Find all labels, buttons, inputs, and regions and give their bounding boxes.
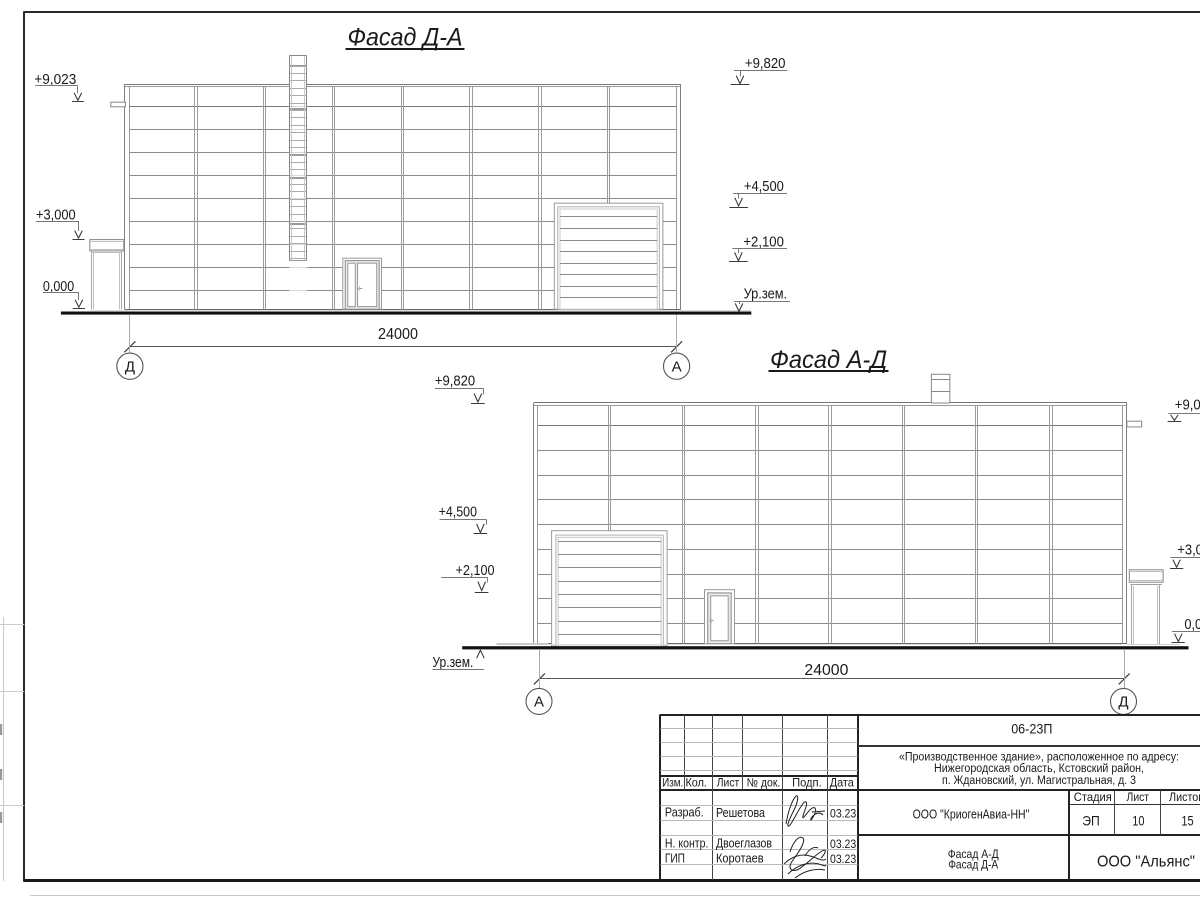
svg-text:Изм.: Изм. [662,776,683,790]
svg-text:+2,100: +2,100 [743,234,784,250]
svg-text:Разраб.: Разраб. [665,806,704,820]
svg-text:+9,020: +9,020 [1175,398,1200,414]
svg-text:Ур.зем.: Ур.зем. [744,287,788,303]
svg-text:Листов: Листов [1169,790,1200,804]
svg-text:+9,820: +9,820 [435,374,475,390]
svg-text:ООО "Альянс": ООО "Альянс" [1097,853,1195,870]
svg-text:Н. контр.: Н. контр. [665,837,709,851]
svg-text:п. Ждановский, ул. Магистральн: п. Ждановский, ул. Магистральная, д. 3 [942,775,1136,787]
svg-text:А: А [672,358,682,375]
svg-text:ГИП: ГИП [665,852,685,866]
svg-text:Подп.: Подп. [792,776,822,790]
svg-text:24000: 24000 [378,326,418,343]
svg-text:Двоеглазов: Двоеглазов [716,837,772,851]
svg-text:Стадия: Стадия [1074,790,1112,804]
svg-text:03.23: 03.23 [830,852,856,866]
svg-text:Лист: Лист [717,776,740,790]
svg-text:0,000: 0,000 [1184,617,1200,633]
svg-text:+9,820: +9,820 [745,56,786,72]
svg-text:03.23: 03.23 [830,837,856,851]
svg-text:№ док.: № док. [747,776,781,790]
svg-text:10: 10 [1132,812,1144,828]
svg-text:Лист: Лист [1127,790,1150,804]
svg-text:ООО "КриогенАвиа-НН": ООО "КриогенАвиа-НН" [913,807,1030,821]
svg-text:А: А [534,694,544,711]
svg-text:Коротаев: Коротаев [716,852,764,866]
svg-text:Ур.зем.: Ур.зем. [432,655,473,671]
svg-text:15: 15 [1181,812,1193,828]
svg-text:+2,100: +2,100 [456,563,495,579]
svg-text:24000: 24000 [804,662,848,679]
svg-text:+3,000: +3,000 [1177,543,1200,559]
svg-text:Кол.: Кол. [685,776,707,790]
svg-text:Фасад Д-А: Фасад Д-А [948,858,998,872]
svg-text:Решетова: Решетова [716,806,765,820]
svg-text:Фасад А-Д: Фасад А-Д [770,346,887,374]
svg-text:Дата: Дата [830,776,854,790]
svg-text:Д: Д [125,358,135,375]
svg-text:Д: Д [1118,694,1128,711]
svg-text:03.23: 03.23 [830,806,856,820]
svg-text:«Производственное здание», рас: «Производственное здание», расположенное… [899,751,1179,763]
svg-text:Фасад Д-А: Фасад Д-А [348,24,463,52]
svg-text:06-23П: 06-23П [1011,721,1052,737]
svg-text:ЭП: ЭП [1082,812,1100,828]
svg-text:Нижегородская область, Кстовск: Нижегородская область, Кстовский район, [934,763,1144,775]
svg-text:+4,500: +4,500 [744,179,784,195]
svg-text:+4,500: +4,500 [439,504,477,520]
